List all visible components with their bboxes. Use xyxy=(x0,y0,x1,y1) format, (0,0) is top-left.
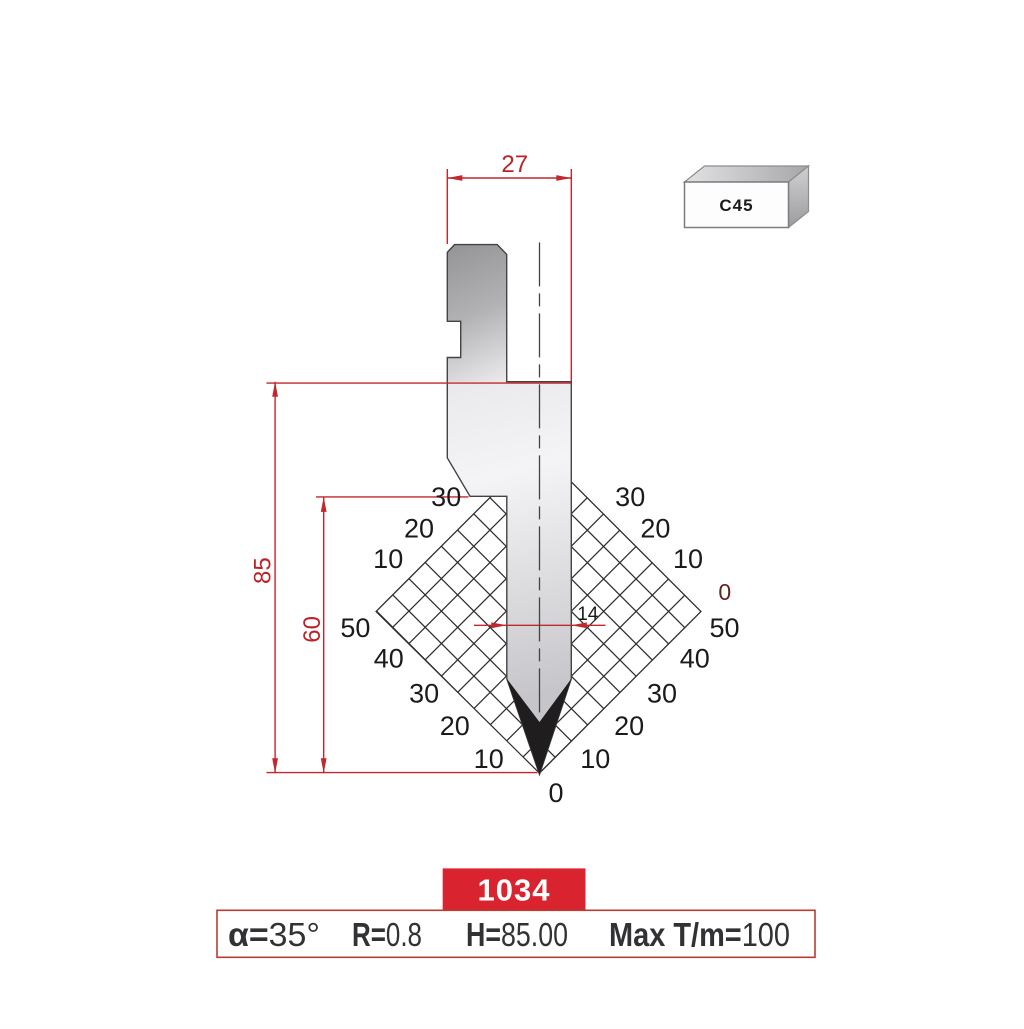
svg-text:50: 50 xyxy=(340,613,370,643)
svg-text:R=0.8: R=0.8 xyxy=(352,916,422,953)
svg-text:30: 30 xyxy=(615,482,645,512)
svg-text:C45: C45 xyxy=(719,196,753,215)
svg-text:14: 14 xyxy=(577,604,599,625)
svg-text:0: 0 xyxy=(548,778,563,808)
svg-text:30: 30 xyxy=(647,679,677,709)
svg-text:H=85.00: H=85.00 xyxy=(466,916,568,953)
svg-text:0: 0 xyxy=(718,579,731,605)
svg-text:30: 30 xyxy=(431,482,461,512)
svg-text:10: 10 xyxy=(474,744,504,774)
svg-text:30: 30 xyxy=(409,679,439,709)
svg-text:40: 40 xyxy=(374,644,404,674)
svg-text:10: 10 xyxy=(373,544,403,574)
svg-text:20: 20 xyxy=(614,711,644,741)
svg-text:20: 20 xyxy=(404,514,434,544)
svg-text:20: 20 xyxy=(640,514,670,544)
svg-text:10: 10 xyxy=(580,744,610,774)
svg-text:27: 27 xyxy=(501,151,528,178)
svg-text:1034: 1034 xyxy=(478,873,551,908)
svg-text:50: 50 xyxy=(709,613,739,643)
svg-text:α=35°: α=35° xyxy=(228,916,320,953)
svg-text:10: 10 xyxy=(673,544,703,574)
svg-text:60: 60 xyxy=(299,616,326,643)
svg-text:20: 20 xyxy=(440,711,470,741)
svg-text:40: 40 xyxy=(680,644,710,674)
svg-text:85: 85 xyxy=(250,557,277,584)
svg-text:Max T/m=100: Max T/m=100 xyxy=(609,916,790,953)
